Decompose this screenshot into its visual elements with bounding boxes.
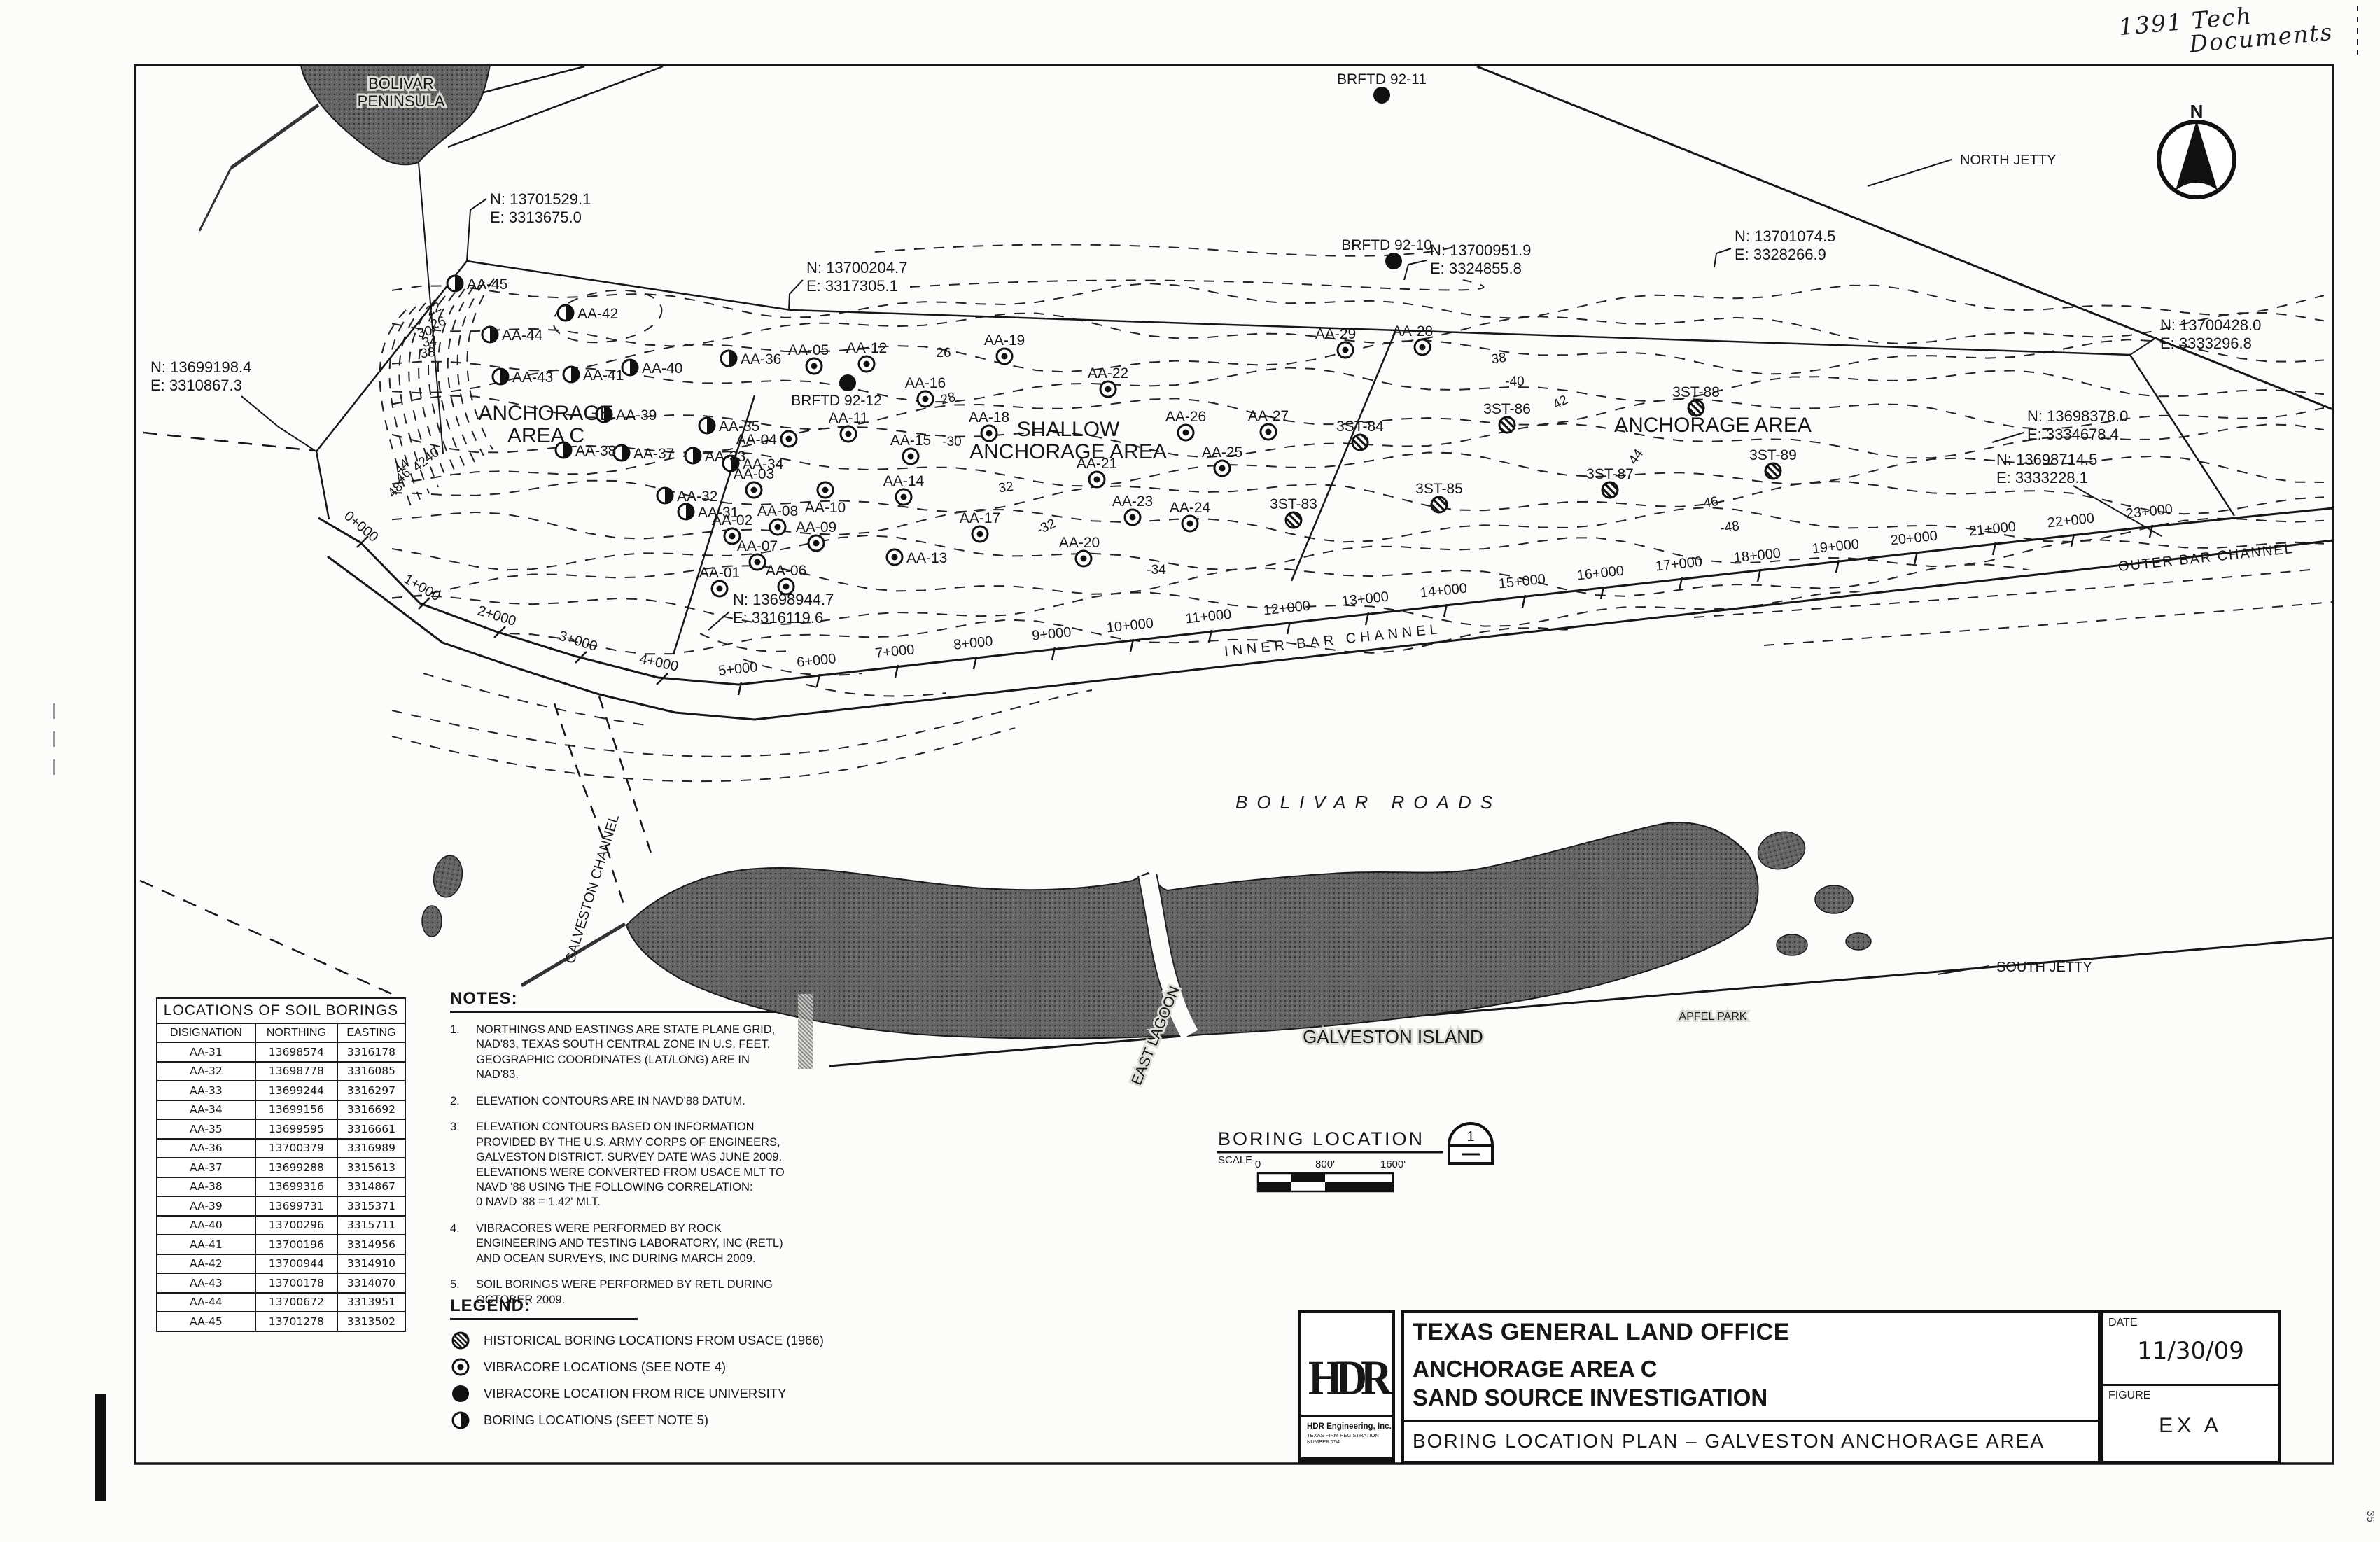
vibracore-marker-AA-27	[1261, 424, 1276, 440]
station-label: 4+000	[638, 652, 680, 675]
coordinate-callout: N: 13698944.7	[733, 591, 834, 608]
marker-label-AA-06: AA-06	[766, 563, 806, 579]
area-label: APFEL PARK	[1679, 1011, 1747, 1023]
company-name: HDR Engineering, Inc.	[1307, 1422, 1392, 1431]
vibracore-marker-AA-18	[981, 426, 997, 441]
callout-leader	[708, 612, 729, 630]
area-label: NORTH JETTY	[1960, 153, 2056, 168]
area-label: BOLIVAR	[368, 75, 434, 92]
vibracore-marker-AA-12	[859, 356, 874, 372]
islet	[422, 906, 442, 937]
scan-artifact	[798, 994, 813, 1069]
station-label: 8+000	[953, 633, 993, 653]
marker-label-AA-19: AA-19	[984, 332, 1025, 349]
area-label: PENINSULA	[358, 92, 445, 110]
station-label: 20+000	[1890, 528, 1938, 549]
coordinate-callout: N: 13700204.7	[806, 259, 907, 276]
table-row: AA-36137003793316989	[157, 1139, 405, 1158]
rice-marker-BRFTD 92-12	[839, 374, 856, 391]
table-row: AA-41137001963314956	[157, 1235, 405, 1254]
marker-label-AA-36: AA-36	[741, 351, 781, 367]
boring-symbol	[450, 1410, 471, 1431]
vibracore-marker-AA-07	[750, 554, 765, 570]
boring-marker-AA-31	[678, 504, 694, 519]
coordinate-callout: N: 13700951.9	[1430, 241, 1531, 259]
marker-label-AA-25: AA-25	[1202, 444, 1242, 461]
boring-marker-AA-40	[622, 360, 638, 375]
coordinate-callout: E: 3313675.0	[490, 209, 582, 226]
vibracore-marker-AA-29	[1338, 342, 1353, 358]
vibracore-marker-AA-22	[1100, 381, 1116, 397]
marker-label-3ST-89: 3ST-89	[1749, 447, 1797, 463]
table-row: AA-33136992443316297	[157, 1081, 405, 1100]
callout-leader	[789, 280, 803, 309]
vibracore-marker-AA-19	[997, 349, 1012, 364]
marker-label-AA-45: AA-45	[467, 276, 507, 293]
scan-edge-mark	[95, 1394, 106, 1501]
coordinate-callout: E: 3317305.1	[806, 277, 898, 295]
station-label: 12+000	[1263, 598, 1311, 619]
area-label: OUTER BAR CHANNEL	[2117, 541, 2295, 575]
marker-label-AA-32: AA-32	[677, 489, 717, 505]
coordinate-callout: N: 13698714.5	[1996, 451, 2097, 468]
table-row: AA-37136992883315613	[157, 1158, 405, 1177]
islet	[430, 853, 465, 899]
marker-label-3ST-85: 3ST-85	[1415, 481, 1463, 497]
vibracore-marker-AA-15	[903, 449, 918, 464]
notes-list: 1.NORTHINGS AND EASTINGS ARE STATE PLANE…	[450, 1023, 804, 1308]
marker-label-AA-05: AA-05	[788, 342, 829, 358]
marker-label-AA-20: AA-20	[1059, 535, 1100, 551]
divider	[1404, 1420, 2098, 1422]
area-label: ANCHORAGE AREA	[1614, 414, 1812, 437]
table-row: AA-38136993163314867	[157, 1177, 405, 1197]
vibracore-marker-AA-28	[1415, 339, 1430, 355]
islet	[1753, 827, 1809, 874]
divider	[1301, 1415, 1392, 1417]
marker-label-AA-28: AA-28	[1392, 323, 1433, 339]
vibracore-marker-AA-11	[841, 426, 856, 442]
boring-marker-AA-44	[482, 327, 498, 342]
vibracore-marker-AA-03	[746, 482, 762, 498]
contour-depth-label: 42	[1550, 393, 1571, 412]
islet	[1815, 885, 1853, 913]
rice-marker-BRFTD 92-10	[1385, 253, 1402, 269]
area-label: SHALLOW	[1017, 418, 1120, 441]
project-line2: SAND SOURCE INVESTIGATION	[1413, 1385, 2098, 1411]
contour-depth-label: -40	[1505, 374, 1524, 389]
scale-title: BORING LOCATION	[1218, 1128, 1424, 1149]
table-row: AA-44137006723313951	[157, 1293, 405, 1312]
legend-item-text: BORING LOCATIONS (SEET NOTE 5)	[484, 1413, 708, 1428]
historical-marker-3ST-86	[1499, 417, 1515, 433]
marker-label-AA-11: AA-11	[829, 410, 869, 426]
figure-value: EX A	[2103, 1414, 2278, 1438]
marker-label-AA-09: AA-09	[796, 519, 836, 535]
drawing-sheet: AA-45AA-42AA-44AA-40AA-36AA-43AA-41AA-39…	[0, 0, 2380, 1542]
marker-label-AA-02: AA-02	[712, 512, 752, 528]
sheet-corner-mark: 35	[2365, 1511, 2376, 1522]
callout-leader	[1404, 260, 1427, 280]
vibracore-marker-AA-10	[818, 482, 833, 498]
coordinate-callout: E: 3310867.3	[150, 377, 242, 394]
date-label: DATE	[2108, 1317, 2137, 1329]
marker-label-AA-16: AA-16	[905, 375, 946, 391]
legend-list: HISTORICAL BORING LOCATIONS FROM USACE (…	[450, 1330, 870, 1431]
vibracore-marker-AA-25	[1214, 461, 1230, 476]
marker-label-AA-12: AA-12	[846, 340, 887, 356]
marker-label-AA-15: AA-15	[890, 433, 931, 449]
station-label: 1+000	[401, 571, 443, 604]
table-row: AA-39136997313315371	[157, 1196, 405, 1216]
vibracore-marker-AA-14	[896, 489, 911, 505]
marker-label-AA-33: AA-33	[705, 449, 745, 465]
rice-marker-BRFTD 92-11	[1373, 87, 1390, 104]
marker-label-BRFTD 92-10: BRFTD 92-10	[1341, 237, 1432, 253]
coordinate-callout: N: 13700428.0	[2160, 316, 2261, 334]
title-block: TEXAS GENERAL LAND OFFICE ANCHORAGE AREA…	[1401, 1310, 2101, 1464]
north-arrow-icon	[2159, 120, 2234, 197]
marker-label-AA-10: AA-10	[805, 500, 846, 516]
scale-tick-label: 1600'	[1380, 1158, 1406, 1170]
legend-item: VIBRACORE LOCATION FROM RICE UNIVERSITY	[450, 1383, 870, 1404]
station-label: 11+000	[1184, 607, 1232, 627]
marker-label-AA-39: AA-39	[616, 407, 657, 423]
table-row: AA-42137009443314910	[157, 1254, 405, 1274]
figure-label: FIGURE	[2108, 1389, 2150, 1402]
station-label: 0+000	[341, 508, 381, 545]
note-item: 4.VIBRACORES WERE PERFORMED BY ROCK ENGI…	[450, 1221, 804, 1266]
date-figure-block: DATE 11/30/09 FIGURE EX A	[2101, 1310, 2281, 1464]
marker-label-AA-42: AA-42	[577, 306, 618, 322]
note-item: 1.NORTHINGS AND EASTINGS ARE STATE PLANE…	[450, 1023, 804, 1083]
table-column-header: DISIGNATION	[157, 1023, 255, 1042]
area-label: AREA C	[507, 424, 584, 447]
marker-label-BRFTD 92-12: BRFTD 92-12	[791, 393, 882, 409]
station-label: 6+000	[796, 651, 836, 671]
soil-borings-table: LOCATIONS OF SOIL BORINGSDISIGNATIONNORT…	[156, 997, 406, 1332]
station-label: 18+000	[1733, 546, 1781, 566]
historical-marker-3ST-87	[1602, 482, 1618, 498]
contour-depth-label: 26	[936, 346, 951, 360]
vibracore-marker-AA-24	[1182, 516, 1198, 531]
marker-label-AA-37: AA-37	[633, 446, 674, 462]
boring-marker-AA-42	[558, 305, 573, 321]
boring-marker-AA-33	[685, 448, 701, 463]
callout-leader	[1992, 433, 2024, 442]
marker-label-3ST-83: 3ST-83	[1270, 496, 1317, 512]
note-item: 2.ELEVATION CONTOURS ARE IN NAVD'88 DATU…	[450, 1094, 804, 1109]
legend-item-text: VIBRACORE LOCATION FROM RICE UNIVERSITY	[484, 1386, 786, 1401]
vibracore-marker-AA-26	[1178, 425, 1193, 440]
marker-label-AA-29: AA-29	[1315, 326, 1356, 342]
marker-label-AA-13: AA-13	[906, 550, 947, 566]
area-label: GALVESTON ISLAND	[1303, 1026, 1483, 1047]
contour-depth-label: 32	[997, 479, 1014, 496]
marker-label-3ST-86: 3ST-86	[1483, 401, 1531, 417]
area-label: ANCHORAGE AREA	[969, 440, 1167, 463]
marker-label-AA-18: AA-18	[969, 409, 1009, 426]
coordinate-callout: E: 3316119.6	[733, 609, 823, 626]
historical-marker-3ST-84	[1352, 435, 1368, 450]
contour-depth-label: 38	[419, 345, 436, 362]
drawing-title: BORING LOCATION PLAN – GALVESTON ANCHORA…	[1413, 1430, 2098, 1452]
marker-label-AA-14: AA-14	[883, 473, 925, 489]
table-row: AA-34136991563316692	[157, 1100, 405, 1120]
coordinate-callout: E: 3334678.4	[2027, 426, 2119, 443]
vibracore-marker-AA-04	[781, 431, 797, 447]
station-label: 16+000	[1576, 563, 1625, 584]
station-label: 14+000	[1420, 581, 1468, 601]
historical-marker-3ST-89	[1765, 463, 1781, 479]
vibracore-marker-AA-05	[806, 358, 822, 374]
scale-tick-label: 0	[1255, 1158, 1261, 1170]
marker-label-AA-40: AA-40	[642, 360, 682, 377]
marker-label-AA-07: AA-07	[737, 538, 778, 554]
coordinate-callout: E: 3333296.8	[2160, 335, 2252, 352]
contour-depth-label: -48	[1719, 519, 1740, 536]
callout-leader	[241, 396, 316, 451]
legend-title: LEGEND:	[450, 1296, 638, 1320]
area-label: BOLIVAR ROADS	[1235, 792, 1501, 813]
station-label: 17+000	[1655, 554, 1703, 575]
marker-label-3ST-87: 3ST-87	[1586, 466, 1634, 482]
marker-label-AA-44: AA-44	[502, 328, 543, 344]
vibracore-symbol	[450, 1357, 471, 1378]
vibracore-marker-AA-21	[1089, 472, 1105, 487]
marker-label-AA-08: AA-08	[757, 503, 798, 519]
station-label: 9+000	[1031, 624, 1072, 644]
area-label: SOUTH JETTY	[1996, 960, 2092, 975]
vibracore-marker-AA-09	[808, 535, 824, 551]
contour-depth-label: 44	[1626, 447, 1647, 468]
table-row: AA-40137002963315711	[157, 1216, 405, 1235]
vibracore-marker-AA-16	[918, 391, 933, 407]
boring-marker-AA-32	[657, 488, 673, 503]
vibracore-marker-AA-23	[1125, 510, 1140, 525]
legend-item: VIBRACORE LOCATIONS (SEE NOTE 4)	[450, 1357, 870, 1378]
vibracore-marker-AA-20	[1076, 551, 1091, 566]
area-label: ANCHORAGE	[478, 402, 613, 425]
land-masses	[199, 65, 1871, 1038]
coordinate-callout: E: 3328266.9	[1735, 246, 1826, 263]
marker-label-AA-22: AA-22	[1088, 365, 1128, 381]
rice-vibracore-symbol	[450, 1383, 471, 1404]
date-value: 11/30/09	[2103, 1337, 2278, 1365]
station-label: 3+000	[557, 629, 599, 654]
islet	[1777, 934, 1807, 955]
contour-depth-label: -30	[942, 435, 961, 449]
station-label: 10+000	[1106, 616, 1154, 636]
marker-label-AA-03: AA-03	[734, 466, 774, 482]
marker-label-AA-41: AA-41	[583, 367, 624, 384]
figure-cell: FIGURE EX A	[2103, 1386, 2278, 1462]
contour-depth-label: -32	[1035, 517, 1058, 538]
legend-item: HISTORICAL BORING LOCATIONS FROM USACE (…	[450, 1330, 870, 1351]
contour-depth-label: 38	[1490, 351, 1507, 367]
historical-boring-symbol	[450, 1330, 471, 1351]
legend-section: LEGEND: HISTORICAL BORING LOCATIONS FROM…	[450, 1296, 870, 1436]
legend-item-text: HISTORICAL BORING LOCATIONS FROM USACE (…	[484, 1333, 824, 1348]
vibracore-marker-AA-13	[887, 549, 902, 565]
elevation-contours	[380, 244, 2333, 781]
scale-label: SCALE	[1218, 1154, 1252, 1166]
marker-label-AA-43: AA-43	[512, 370, 553, 386]
table-title: LOCATIONS OF SOIL BORINGS	[157, 998, 405, 1023]
table-row: AA-43137001783314070	[157, 1273, 405, 1293]
hdr-logo: HDR	[1308, 1351, 1392, 1407]
coordinate-callout: N: 13699198.4	[150, 358, 251, 376]
boring-marker-AA-41	[563, 367, 579, 382]
marker-label-AA-27: AA-27	[1248, 408, 1289, 424]
table-row: AA-35136995953316661	[157, 1119, 405, 1139]
marker-label-3ST-88: 3ST-88	[1672, 384, 1720, 400]
table-row: AA-31136985743316178	[157, 1042, 405, 1062]
table-row: AA-32136987783316085	[157, 1062, 405, 1081]
date-cell: DATE 11/30/09	[2103, 1313, 2278, 1386]
boring-marker-AA-45	[447, 276, 463, 291]
station-label: 13+000	[1341, 589, 1389, 610]
coordinate-callout: N: 13701529.1	[490, 190, 591, 208]
contour-depth-label: -46	[1698, 494, 1720, 512]
boring-marker-AA-35	[699, 418, 715, 433]
callout-leader	[467, 199, 486, 261]
boring-marker-AA-36	[721, 351, 736, 366]
table-column-header: EASTING	[337, 1023, 405, 1042]
vibracore-marker-AA-08	[770, 519, 785, 535]
callout-leader	[1714, 248, 1731, 267]
marker-label-AA-04: AA-04	[736, 432, 778, 448]
vibracore-marker-AA-01	[712, 581, 727, 596]
coordinate-callout: E: 3324855.8	[1430, 260, 1522, 277]
company-logo-block: HDR HDR Engineering, Inc. TEXAS FIRM REG…	[1298, 1310, 1395, 1464]
legend-item-text: VIBRACORE LOCATIONS (SEE NOTE 4)	[484, 1359, 726, 1375]
table-column-header: NORTHING	[255, 1023, 337, 1042]
coordinate-callout: N: 13701074.5	[1735, 227, 1835, 245]
project-line1: ANCHORAGE AREA C	[1413, 1356, 2098, 1382]
coordinate-callout: N: 13698378.0	[2027, 407, 2128, 425]
organization-name: TEXAS GENERAL LAND OFFICE	[1413, 1319, 2098, 1346]
notes-title: NOTES:	[450, 989, 776, 1013]
notes-section: NOTES: 1.NORTHINGS AND EASTINGS ARE STAT…	[450, 989, 804, 1319]
marker-label-AA-26: AA-26	[1165, 409, 1206, 425]
legend-item: BORING LOCATIONS (SEET NOTE 5)	[450, 1410, 870, 1431]
marker-label-AA-23: AA-23	[1112, 493, 1153, 510]
station-label: 7+000	[874, 642, 915, 661]
company-registration: TEXAS FIRM REGISTRATION NUMBER 754	[1307, 1432, 1392, 1445]
scale-bubble-number: 1	[1466, 1129, 1474, 1144]
marker-label-AA-24: AA-24	[1170, 500, 1211, 516]
boring-markers	[447, 87, 1781, 596]
scale-tick-label: 800'	[1315, 1158, 1335, 1170]
historical-marker-3ST-83	[1286, 512, 1301, 528]
islet	[1846, 933, 1871, 950]
note-item: 3.ELEVATION CONTOURS BASED ON INFORMATIO…	[450, 1120, 804, 1210]
marker-label-AA-01: AA-01	[699, 565, 740, 581]
table-row: AA-45137012783313502	[157, 1312, 405, 1331]
boring-marker-AA-43	[493, 369, 508, 384]
coordinate-callout: E: 3333228.1	[1996, 469, 2088, 486]
marker-label-BRFTD 92-11: BRFTD 92-11	[1337, 71, 1427, 87]
north-arrow-letter: N	[2190, 101, 2204, 122]
station-label: 22+000	[2047, 511, 2095, 531]
contour-depth-label: -34	[1147, 563, 1166, 577]
station-label: 19+000	[1812, 537, 1860, 557]
historical-marker-3ST-85	[1431, 497, 1447, 512]
station-label: 5+000	[717, 659, 758, 679]
marker-label-3ST-84: 3ST-84	[1336, 419, 1384, 435]
vibracore-marker-AA-17	[972, 526, 988, 542]
marker-label-AA-17: AA-17	[960, 510, 1000, 526]
